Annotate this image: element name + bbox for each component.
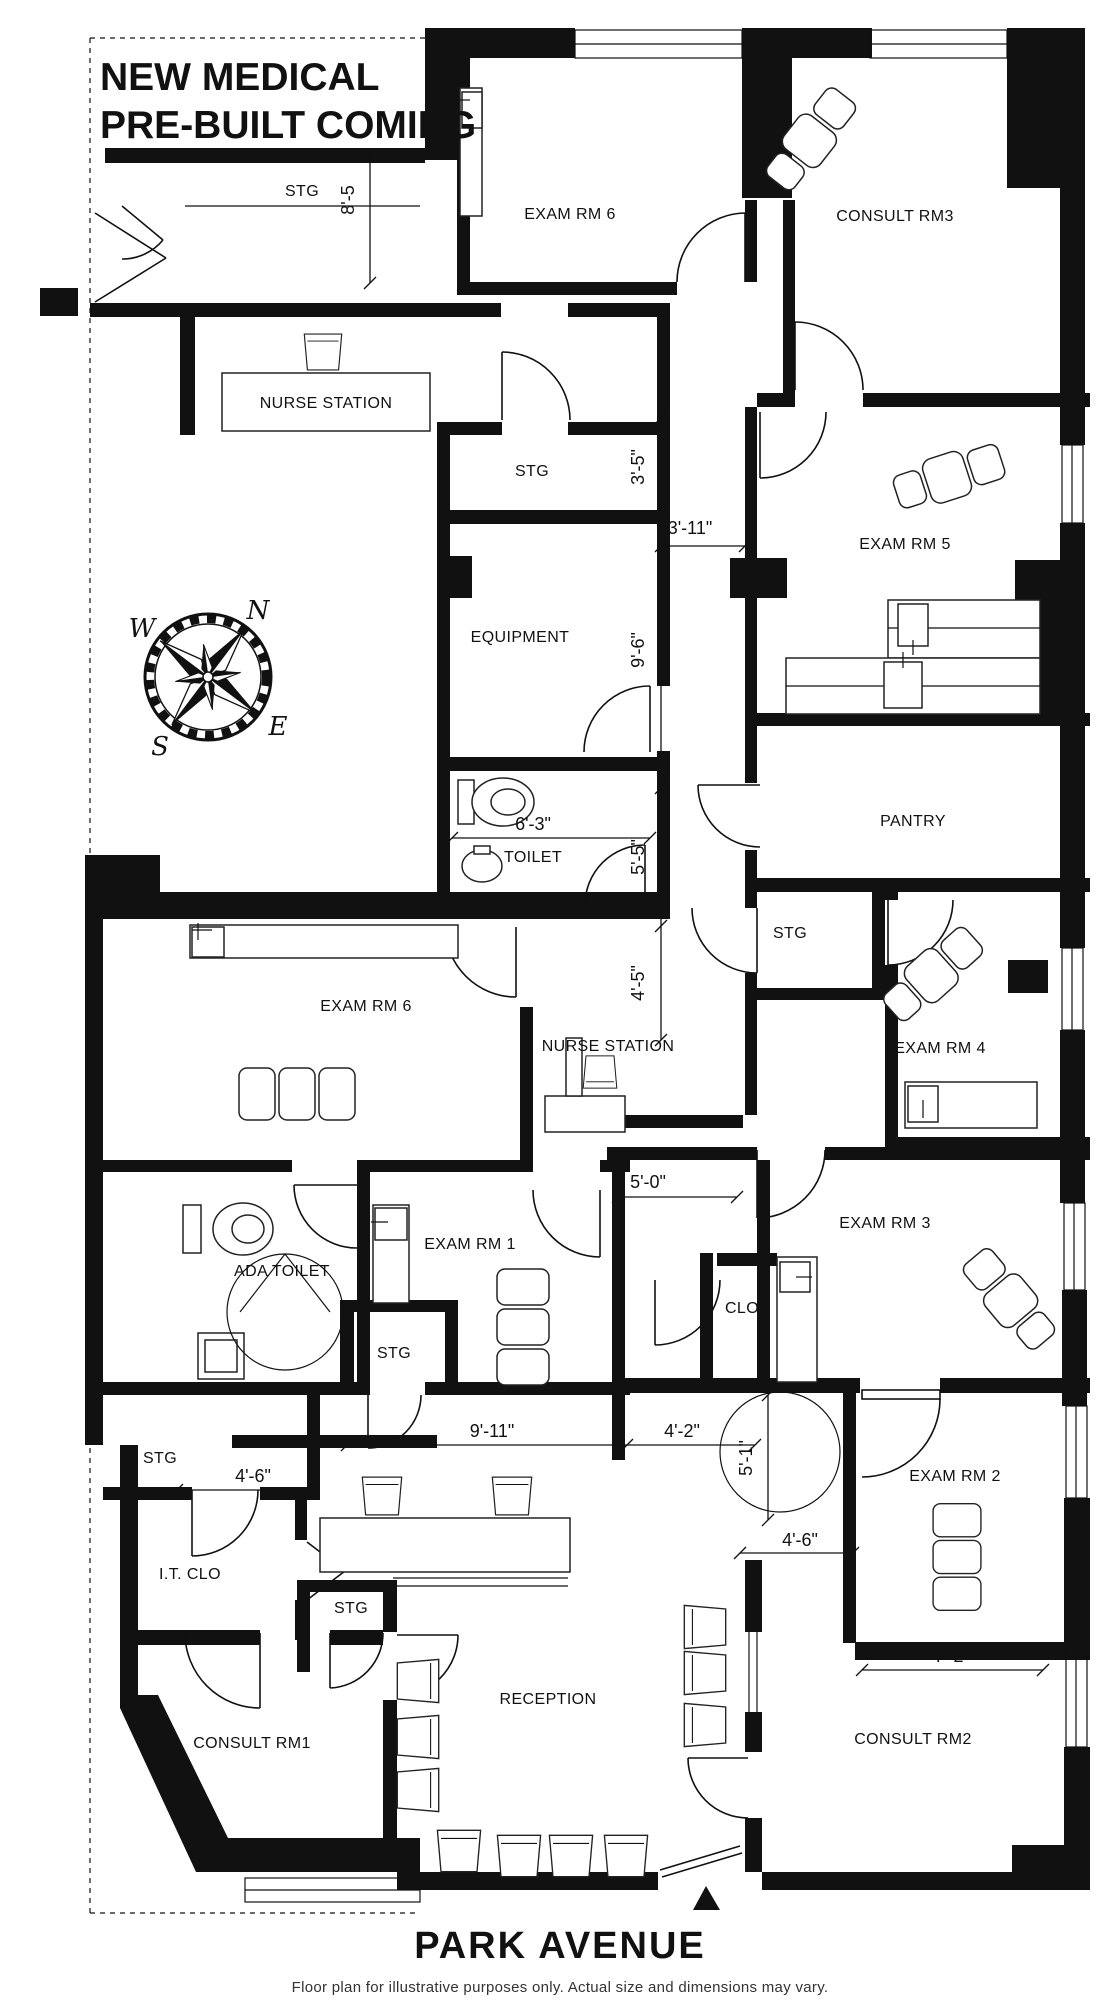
window-bottom-consult1 [245, 1878, 420, 1902]
plan-title-line2: PRE-BUILT COMING [100, 104, 476, 147]
dim-label-4-6-right: 4'-6" [782, 1530, 818, 1550]
plan-title-line1: NEW MEDICAL [100, 56, 379, 99]
room-label-exam-rm-5: EXAM RM 5 [859, 536, 951, 553]
room-label-consult-rm-1: CONSULT RM1 [193, 1735, 311, 1752]
dim-label-7-2: 7'-2" [934, 1646, 970, 1666]
fixtures [183, 82, 1062, 1877]
dim-label-3-5: 3'-5" [628, 449, 648, 485]
floor-plan-page: { "title": {"line1": "NEW MEDICAL", "lin… [0, 0, 1120, 2000]
waiting-chair-right-3 [684, 1703, 725, 1746]
waiting-chair-left-2 [397, 1715, 438, 1758]
exam-table-rm2 [933, 1504, 981, 1611]
room-label-exam-rm-1: EXAM RM 1 [424, 1236, 516, 1253]
room-label-nurse-station-lower: NURSE STATION [542, 1038, 675, 1055]
dim-label-9-6: 9'-6" [628, 632, 648, 668]
room-label-equipment: EQUIPMENT [471, 629, 570, 646]
counter-exam4 [905, 1082, 1037, 1128]
compass-south-label: S [151, 732, 169, 762]
counter-exam5-lower [786, 652, 1040, 714]
dimline-5-0 [612, 1191, 743, 1203]
room-label-stg-left: STG [143, 1450, 177, 1467]
room-label-nurse-station-top: NURSE STATION [260, 395, 393, 412]
door-exam-rm-6-top [677, 213, 745, 282]
door-exam-rm-5 [760, 412, 826, 478]
window-right-2 [1062, 948, 1083, 1030]
compass-west-label: W [129, 614, 158, 644]
dim-label-3-11: 3'-11" [668, 518, 713, 538]
street-name: PARK AVENUE [414, 1925, 706, 1967]
door-pantry [698, 785, 760, 847]
door-exam-rm-1 [533, 1190, 600, 1257]
dim-label-6-3: 6'-3" [515, 814, 551, 834]
room-label-stg-exam1-closet: STG [377, 1345, 411, 1362]
room-label-pantry: PANTRY [880, 813, 946, 830]
waiting-chair-left-3 [397, 1768, 438, 1811]
nurse-station-lower-chair [583, 1056, 617, 1088]
door-equipment [584, 686, 650, 752]
compass-north-label: N [246, 596, 271, 626]
dimline-8-5 [364, 149, 376, 289]
labels: NEW MEDICAL PRE-BUILT COMING STG EXAM RM… [100, 56, 1001, 1996]
dim-label-8-5: 8'-5 [338, 185, 358, 214]
dim-label-5-5: 5'-5" [628, 839, 648, 875]
counter-exam3 [777, 1257, 817, 1382]
nurse-station-top-chair [304, 334, 341, 370]
window-right-1 [1062, 445, 1083, 523]
entry-arrow-icon [693, 1886, 720, 1910]
counter-exam1 [371, 1205, 409, 1303]
dim-label-4-6-left: 4'-6" [235, 1466, 271, 1486]
waiting-chair-left-1 [397, 1659, 438, 1702]
room-label-consult-rm-3: CONSULT RM3 [836, 208, 954, 225]
counter-exam5-upper [888, 600, 1040, 658]
exam-chair-rm5 [890, 438, 1009, 516]
compass-rose: N W E S [124, 593, 292, 762]
exam-table-rm1 [497, 1269, 549, 1385]
window-top-consult3 [870, 30, 1007, 58]
room-label-exam-rm-3: EXAM RM 3 [839, 1215, 931, 1232]
door-stg-left [192, 1490, 258, 1556]
room-label-clo: CLO [725, 1300, 759, 1317]
reception-chair-staff-2 [492, 1477, 531, 1515]
room-label-stg-top: STG [285, 183, 319, 200]
dim-label-4-2: 4'-2" [664, 1421, 700, 1441]
waiting-chair-right-1 [684, 1605, 725, 1648]
room-label-exam-rm-4: EXAM RM 4 [894, 1040, 986, 1057]
door-main-entry-suite [95, 213, 166, 302]
window-right-3 [1064, 1203, 1085, 1290]
dim-label-5-1: 5'-1" [736, 1440, 756, 1476]
disclaimer-text: Floor plan for illustrative purposes onl… [292, 1979, 829, 1996]
ada-sink [198, 1333, 244, 1379]
door-consult-rm-3 [795, 322, 863, 390]
door-stg-top [122, 206, 163, 259]
room-label-reception: RECEPTION [500, 1691, 597, 1708]
door-consult-rm-2 [688, 1758, 748, 1818]
room-label-stg-right: STG [773, 925, 807, 942]
room-label-consult-rm-2: CONSULT RM2 [854, 1731, 972, 1748]
waiting-chair-bottom-2 [497, 1835, 540, 1876]
ada-toilet-fixture [183, 1203, 273, 1255]
waiting-chair-right-2 [684, 1651, 725, 1694]
dim-label-5-0: 5'-0" [630, 1172, 666, 1192]
window-right-5 [1066, 1648, 1087, 1747]
room-label-exam-rm-6-lower: EXAM RM 6 [320, 998, 412, 1015]
waiting-chair-bottom-1 [437, 1830, 480, 1871]
room-label-it-clo: I.T. CLO [159, 1566, 221, 1583]
door-street-entry [660, 1846, 742, 1877]
door-exam-rm-2 [862, 1390, 940, 1477]
room-label-ada-toilet: ADA TOILET [234, 1263, 330, 1280]
window-reception-consult2 [749, 1632, 757, 1712]
reception-chair-staff-1 [362, 1477, 401, 1515]
exam-chair-rm3 [956, 1242, 1062, 1356]
floor-plan-canvas: N W E S NEW MEDICAL PRE-BUILT COMING STG… [0, 0, 1120, 2000]
dim-label-4-5: 4'-5" [628, 965, 648, 1001]
door-ada-toilet [294, 1185, 357, 1248]
waiting-chair-bottom-3 [549, 1835, 592, 1876]
room-label-stg-mid: STG [515, 463, 549, 480]
room-label-toilet: TOILET [504, 849, 562, 866]
door-stg-mid [502, 352, 570, 420]
compass-east-label: E [268, 712, 288, 742]
room-label-stg-reception: STG [334, 1600, 368, 1617]
window-right-4 [1066, 1406, 1087, 1498]
waiting-chair-bottom-4 [604, 1835, 647, 1876]
room-label-exam-rm-6-top: EXAM RM 6 [524, 206, 616, 223]
counter-exam6-lower [190, 923, 458, 958]
toilet-sink [462, 846, 502, 882]
reception-desk [320, 1518, 570, 1586]
room-label-exam-rm-2: EXAM RM 2 [909, 1468, 1001, 1485]
exam-table-rm6-lower [239, 1068, 355, 1120]
dimline-6-3 [446, 832, 656, 844]
dim-label-9-11: 9'-11" [470, 1421, 515, 1441]
door-stg-right [692, 908, 757, 973]
dimline-5-1 [762, 1389, 774, 1526]
window-top-exam6 [575, 30, 742, 58]
